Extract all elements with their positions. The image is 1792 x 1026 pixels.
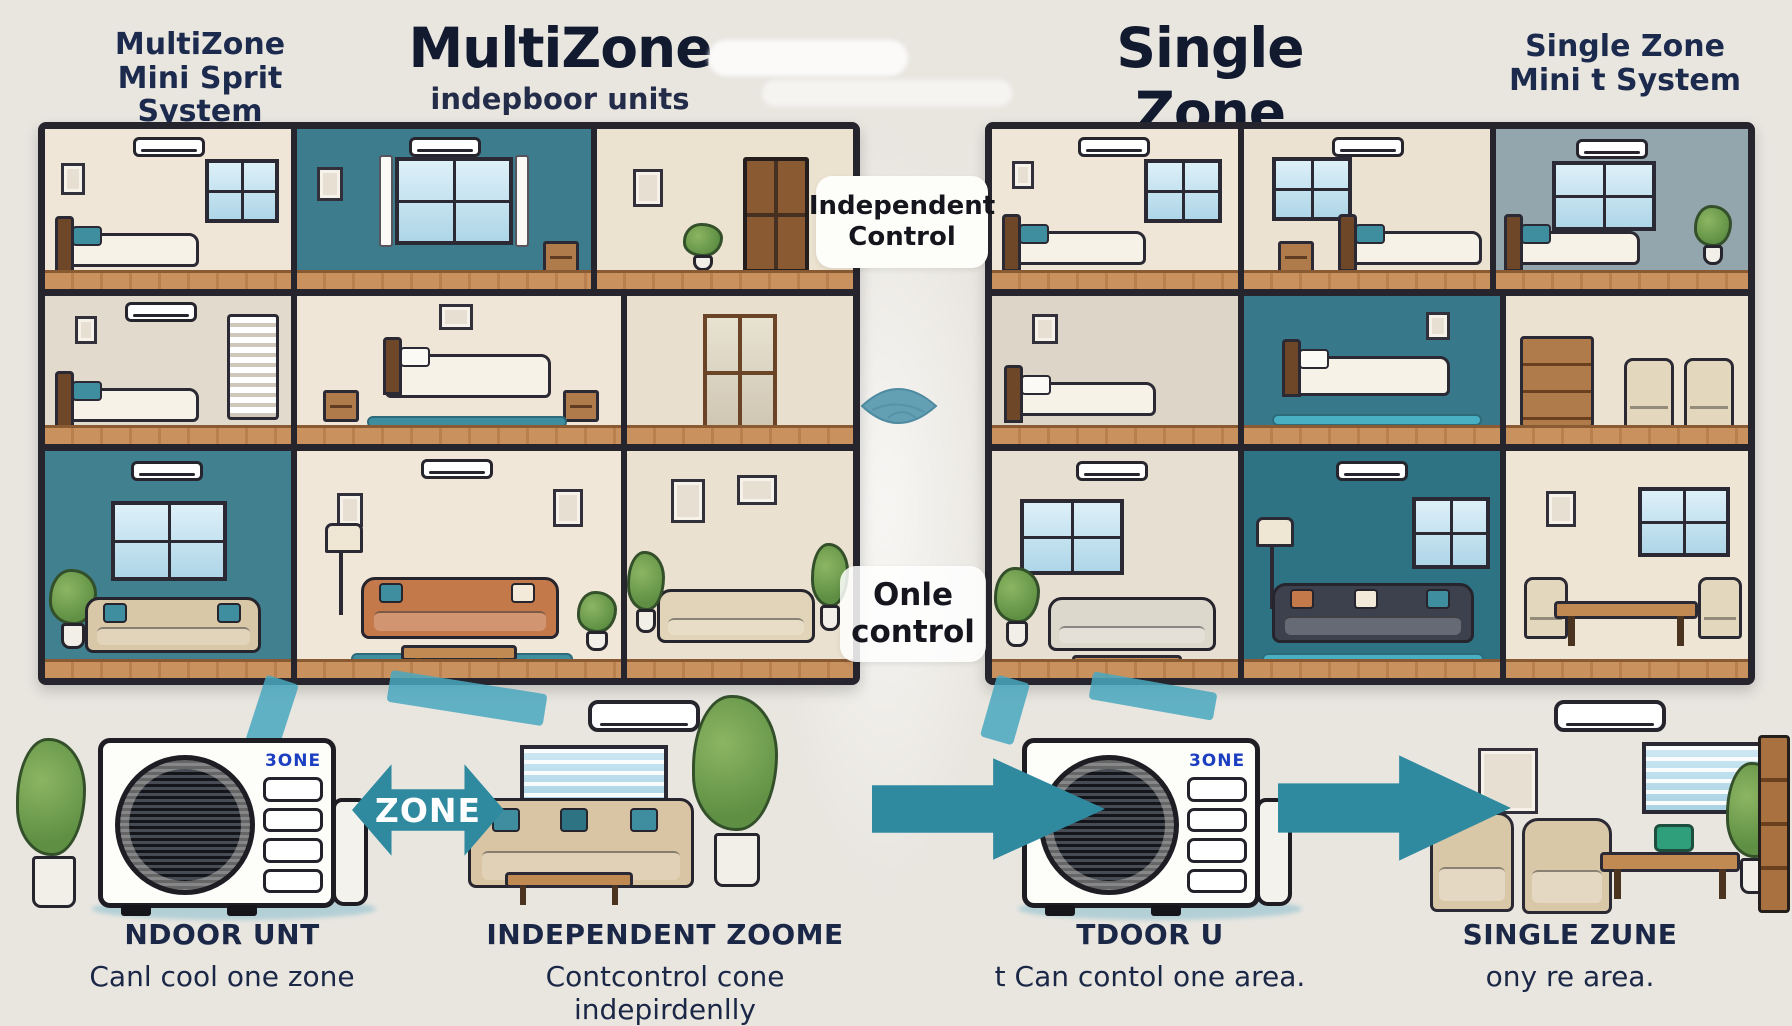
- wall-ac-unit-icon: [409, 137, 481, 157]
- zone-arrow-label: ZONE: [375, 791, 481, 830]
- sofa-pillow: [560, 808, 588, 832]
- dresser: [1520, 336, 1594, 428]
- sofa: [657, 589, 815, 643]
- caption-outdoor-unit: TDOOR U t Can contol one area.: [940, 918, 1360, 993]
- sofa-pillow: [1290, 589, 1314, 609]
- plant-pot: [32, 856, 76, 908]
- sofa-pillow: [103, 603, 127, 623]
- louver-slat: [263, 777, 323, 802]
- caption-subtitle: t Can contol one area.: [940, 960, 1360, 993]
- independent-control-label: Independent Control: [816, 176, 988, 268]
- plant-pot: [586, 631, 608, 651]
- header-far-left: MultiZone Mini Sprit System: [60, 28, 340, 129]
- sofa-pillow: [1354, 589, 1378, 609]
- room-bedroom-d: [992, 296, 1244, 444]
- white-smudge: [708, 40, 908, 76]
- room-bedroom-b: [1244, 129, 1496, 289]
- room-bedroom-1: [45, 129, 297, 289]
- louver-slat: [1187, 838, 1247, 863]
- wall-ac-unit-icon: [1576, 139, 1648, 159]
- curtain: [379, 155, 393, 247]
- nightstand: [1278, 241, 1314, 273]
- header-multizone: MultiZone indepboor units: [395, 16, 725, 116]
- plant: [1694, 205, 1734, 275]
- multizone-house: [38, 122, 860, 685]
- window: [111, 501, 227, 581]
- picture-frame: [1032, 314, 1058, 344]
- plant-pot: [714, 833, 760, 887]
- dining-table: [1600, 852, 1740, 872]
- plant: [627, 551, 667, 651]
- plant: [994, 567, 1042, 663]
- room-hall-upper: [627, 296, 853, 444]
- teapot: [1654, 824, 1694, 852]
- room-den: [45, 451, 297, 678]
- plant-foliage: [1694, 205, 1732, 247]
- louver-slat: [263, 869, 323, 894]
- sofa-pillow: [630, 808, 658, 832]
- label-line: Onle: [873, 577, 953, 614]
- window: [1552, 161, 1656, 231]
- wall-ac-unit-icon: [1078, 137, 1150, 157]
- side-panel: 3ONE: [263, 751, 323, 893]
- multizone-subtitle: indepboor units: [395, 82, 725, 116]
- sofa: [1048, 597, 1216, 651]
- header-line: Single Zone: [1480, 30, 1770, 64]
- window: [1020, 499, 1124, 575]
- picture-frame: [61, 163, 85, 195]
- sofa-pillow: [1426, 589, 1450, 609]
- tall-window-door: [703, 314, 777, 432]
- bed: [1340, 231, 1482, 265]
- plant-foliage: [577, 591, 617, 633]
- zone-badge: 3ONE: [1187, 751, 1247, 771]
- caption-title: NDOOR UNT: [12, 918, 432, 951]
- caption-single-zone: SINGLE ZUNE ony re area.: [1360, 918, 1780, 993]
- zone-badge: 3ONE: [263, 751, 323, 771]
- coffee-table: [505, 872, 633, 888]
- plant: [681, 223, 725, 275]
- picture-frame: [553, 489, 583, 527]
- picture-frame: [633, 169, 663, 207]
- room-bedroom-3: [45, 296, 297, 444]
- wall-ac-unit-icon: [133, 137, 205, 157]
- wall-ac-unit-icon: [1554, 700, 1666, 732]
- plant-pot: [636, 609, 656, 633]
- picture-frame: [671, 479, 705, 523]
- caption-title: SINGLE ZUNE: [1360, 918, 1780, 951]
- plant-foliage: [994, 567, 1040, 623]
- nightstand: [543, 241, 579, 273]
- bed: [1506, 231, 1640, 265]
- wall-ac-unit-icon: [131, 461, 203, 481]
- caption-subtitle: ony re area.: [1360, 960, 1780, 993]
- bed: [57, 388, 199, 422]
- wall-ac-unit-icon: [421, 459, 493, 479]
- caption-indoor-unit: NDOOR UNT Canl cool one zone: [12, 918, 432, 993]
- window: [395, 157, 513, 245]
- plant-pot: [693, 255, 713, 271]
- sofa-pillow: [217, 603, 241, 623]
- outdoor-unit-icon: 3ONE: [98, 738, 336, 908]
- picture-frame: [75, 316, 97, 344]
- room-bedroom-e: [1244, 296, 1506, 444]
- label-line: control: [851, 614, 975, 651]
- room-study: [1506, 296, 1748, 444]
- cabinet: [1758, 735, 1790, 913]
- dining-table: [1554, 601, 1698, 619]
- bed: [385, 354, 551, 398]
- caption-title: INDEPENDENT ZOOME: [455, 918, 875, 951]
- wall-ac-unit-icon: [125, 302, 197, 322]
- caption-subtitle: Contcontrol cone indepirdenlly: [455, 960, 875, 1026]
- room-living: [297, 451, 627, 678]
- plant-foliage: [627, 551, 665, 611]
- rug: [367, 416, 567, 428]
- wall-ac-unit-icon: [1332, 137, 1404, 157]
- sofa-pillow: [379, 583, 403, 603]
- nightstand: [323, 390, 359, 422]
- bed: [1006, 382, 1156, 416]
- caption-subtitle: Canl cool one zone: [12, 960, 432, 993]
- plant-pot: [820, 605, 840, 631]
- header-far-right: Single Zone Mini t System: [1480, 30, 1770, 97]
- sofa-pillow: [511, 583, 535, 603]
- picture-frame: [337, 493, 363, 527]
- picture-frame: [1012, 161, 1034, 189]
- room-bedroom-c: [1496, 129, 1748, 289]
- plant-foliage: [16, 738, 86, 856]
- bed: [57, 233, 199, 267]
- rug: [1272, 414, 1482, 426]
- plant: [688, 695, 784, 907]
- room-family: [992, 451, 1244, 678]
- plant-pot: [1006, 621, 1028, 647]
- rug: [1262, 653, 1484, 665]
- picture-frame: [737, 475, 777, 505]
- floor-separator: [45, 444, 853, 451]
- room-master-bedroom: [297, 296, 627, 444]
- plant: [12, 738, 92, 914]
- coffee-table: [1072, 655, 1182, 671]
- picture-frame: [317, 167, 343, 201]
- wall-ac-unit-icon: [1076, 461, 1148, 481]
- chair: [1684, 358, 1734, 430]
- louver-slat: [1187, 869, 1247, 894]
- floor-separator: [45, 289, 853, 296]
- curtain: [515, 155, 529, 247]
- plant-pot: [61, 623, 85, 649]
- room-bedroom-2: [297, 129, 597, 289]
- bed: [1004, 231, 1146, 265]
- header-line: Mini t System: [1480, 64, 1770, 98]
- room-dining: [1506, 451, 1748, 678]
- floor-separator: [992, 289, 1748, 296]
- armchair: [1522, 818, 1612, 914]
- window: [1272, 157, 1352, 221]
- room-lounge-dark: [1244, 451, 1506, 678]
- leaf-icon: [858, 366, 940, 446]
- louver-slat: [263, 808, 323, 833]
- chair: [1698, 577, 1742, 639]
- picture-frame: [1546, 491, 1576, 527]
- fan-grille-icon: [115, 755, 255, 895]
- plant-foliage: [683, 223, 723, 257]
- bed: [1284, 356, 1450, 396]
- infographic-canvas: { "colors": { "background": "#e9e6e0", "…: [0, 0, 1792, 1024]
- window: [1412, 497, 1490, 569]
- plant-pot: [1703, 245, 1723, 265]
- multizone-title: MultiZone: [395, 16, 725, 80]
- header-line: Mini Sprit System: [60, 62, 340, 129]
- caption-independent-zone: INDEPENDENT ZOOME Contcontrol cone indep…: [455, 918, 875, 1026]
- plant-foliage: [692, 695, 778, 831]
- window: [1144, 159, 1222, 223]
- wall-ac-unit-icon: [588, 700, 700, 732]
- caption-title: TDOOR U: [940, 918, 1360, 951]
- louver-slat: [1187, 777, 1247, 802]
- louver-slat: [263, 838, 323, 863]
- nightstand: [563, 390, 599, 422]
- one-control-label: Onle control: [840, 566, 986, 662]
- picture-frame: [1426, 312, 1450, 340]
- room-lounge: [627, 451, 853, 678]
- chair: [1624, 358, 1674, 430]
- window: [1638, 487, 1730, 557]
- white-smudge: [762, 80, 1012, 106]
- picture-frame: [439, 304, 473, 330]
- louver-closet: [227, 314, 279, 420]
- coffee-table: [401, 645, 517, 661]
- singlezone-house: [985, 122, 1755, 685]
- side-panel: 3ONE: [1187, 751, 1247, 893]
- window: [205, 159, 279, 223]
- label-line: Independent: [809, 191, 995, 222]
- label-line: Control: [848, 222, 955, 253]
- wall-ac-unit-icon: [1336, 461, 1408, 481]
- room-bedroom-a: [992, 129, 1244, 289]
- floor-lamp: [319, 523, 363, 615]
- louver-slat: [1187, 808, 1247, 833]
- header-line: MultiZone: [60, 28, 340, 62]
- floor-separator: [992, 444, 1748, 451]
- door: [743, 157, 809, 273]
- plant: [575, 591, 619, 661]
